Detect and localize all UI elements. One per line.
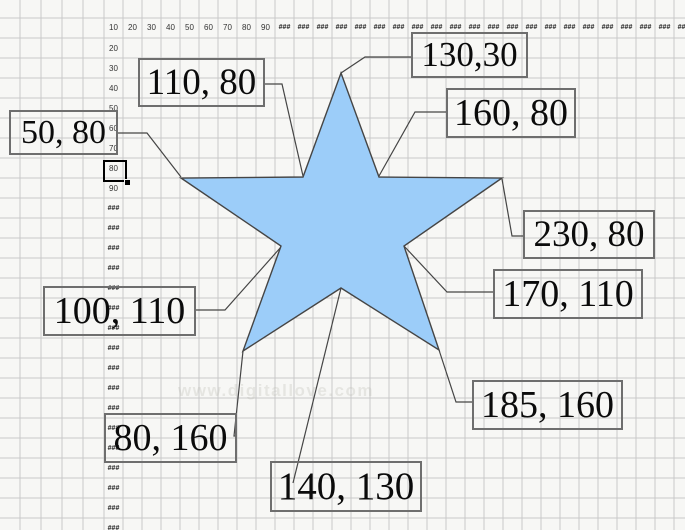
coord-label-110-80[interactable]: 110, 80 <box>138 58 265 107</box>
callout-line <box>502 179 523 236</box>
coord-label-140-130[interactable]: 140, 130 <box>270 461 422 512</box>
coord-label-text: 230, 80 <box>534 213 645 256</box>
coord-label-text: 185, 160 <box>481 383 614 427</box>
coord-label-100-110[interactable]: 100, 110 <box>43 286 196 336</box>
coord-label-text: 110, 80 <box>147 61 257 104</box>
coord-label-80-160[interactable]: 80, 160 <box>104 413 237 463</box>
coord-label-230-80[interactable]: 230, 80 <box>523 210 655 259</box>
coord-label-text: 50, 80 <box>21 114 106 152</box>
coord-label-text: 140, 130 <box>278 464 415 509</box>
callout-line <box>265 84 303 176</box>
worksheet-canvas: 102030405060708090######################… <box>0 0 685 530</box>
callout-line <box>293 288 341 483</box>
coord-label-185-160[interactable]: 185, 160 <box>472 380 623 430</box>
callout-line <box>341 57 411 73</box>
callout-line <box>379 112 446 176</box>
star-drawing <box>0 0 685 530</box>
coord-label-50-80[interactable]: 50, 80 <box>9 110 118 155</box>
coord-label-text: 80, 160 <box>114 416 228 460</box>
callout-line <box>118 133 181 177</box>
coord-label-text: 100, 110 <box>54 289 186 333</box>
coord-label-160-80[interactable]: 160, 80 <box>446 88 576 138</box>
coord-label-text: 130,30 <box>421 35 517 75</box>
callout-line <box>439 350 472 402</box>
coord-label-text: 170, 110 <box>502 272 634 316</box>
coord-label-text: 160, 80 <box>454 91 568 135</box>
coord-label-170-110[interactable]: 170, 110 <box>493 269 643 319</box>
coord-label-130-30[interactable]: 130,30 <box>411 32 528 78</box>
